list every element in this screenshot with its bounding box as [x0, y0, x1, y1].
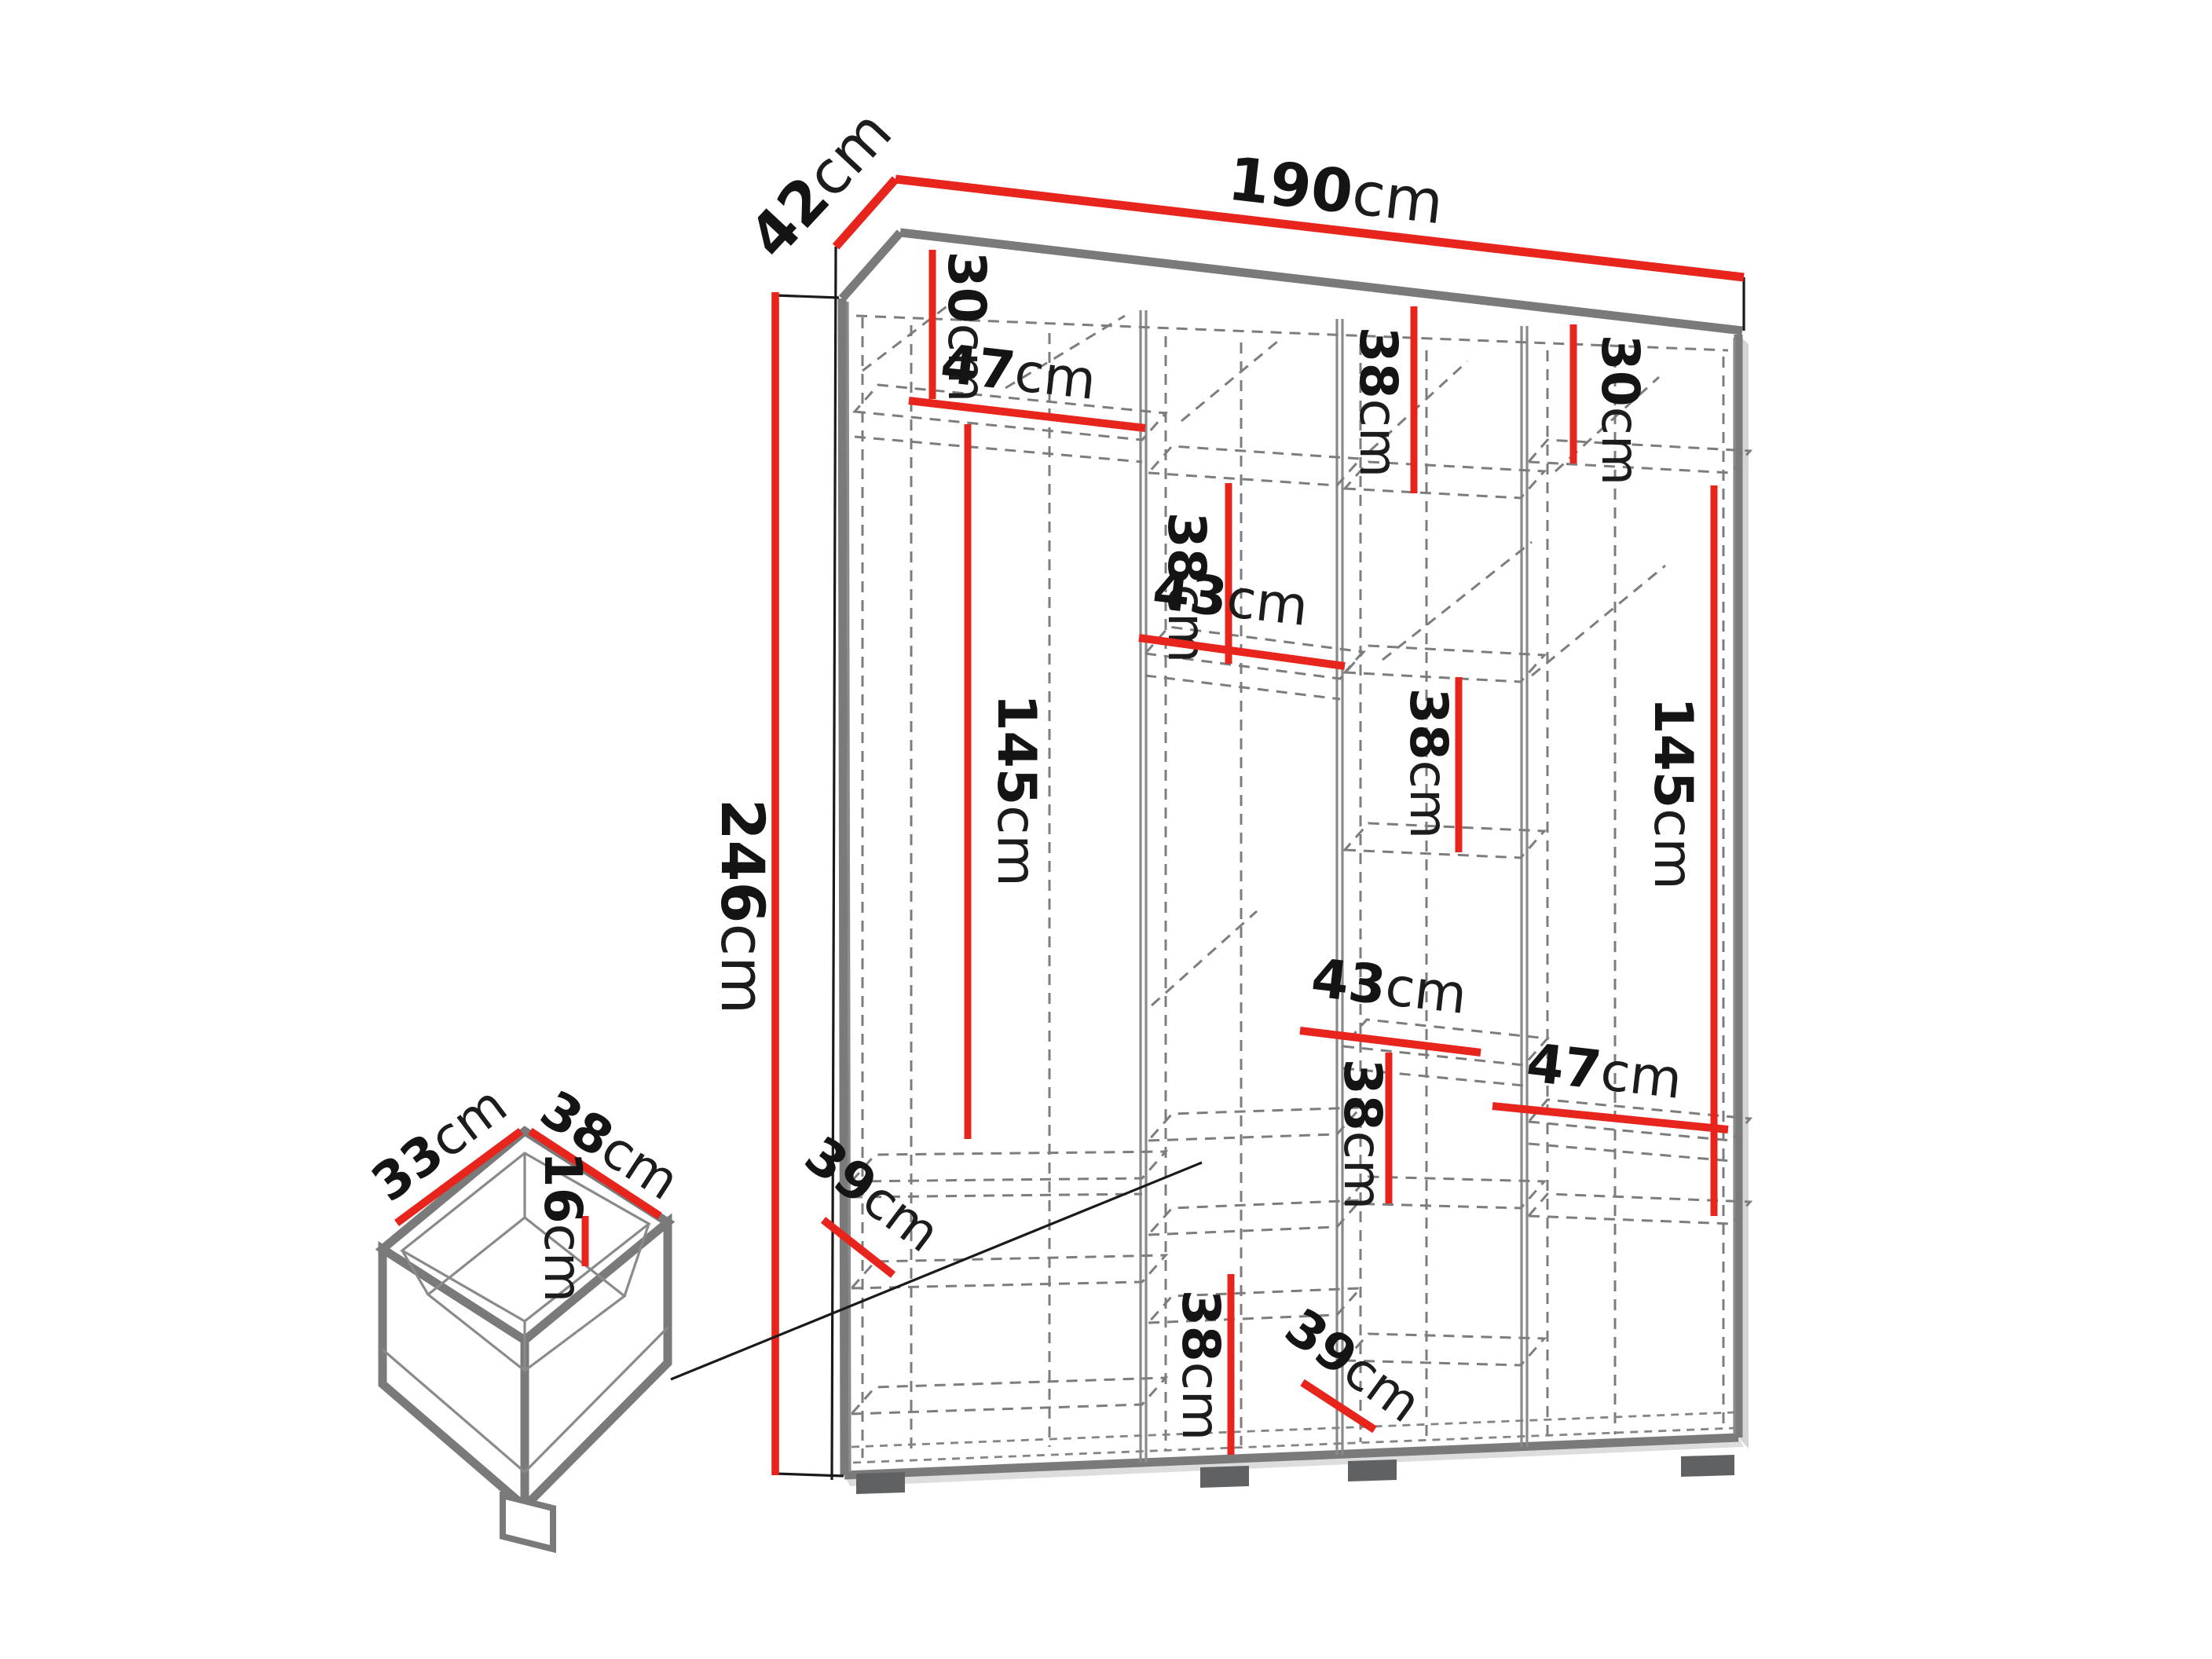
dimension-mid2-gap: 38cm [1398, 677, 1459, 852]
dimension-label-mid2-gap: 38cm [1398, 688, 1459, 839]
drawer-foot-tab [503, 1496, 553, 1549]
foot-3 [1348, 1459, 1397, 1481]
dimension-label-left-section: 145cm [985, 694, 1047, 887]
dimension-mid1-bottom: 38cm [1170, 1274, 1231, 1455]
dimension-label-mid1-bottom: 38cm [1170, 1290, 1231, 1441]
carcass-left-edge [842, 298, 844, 1475]
dimension-drawer-height: 16cm [533, 1152, 593, 1302]
foot-1 [856, 1472, 905, 1494]
dimension-mid2-lower: 38cm [1332, 1053, 1393, 1210]
dimension-label-right-top: 30cm [1590, 335, 1650, 485]
height-tick-bottom [775, 1474, 844, 1476]
foot-2 [1200, 1466, 1249, 1488]
dimension-label-height: 246cm [708, 799, 778, 1014]
diagram-page: 190cm 42cm 246cm 30cm 47cm 145cm 39cm 38… [0, 0, 2212, 1659]
height-tick-top [775, 295, 839, 298]
dimension-label-drawer-height: 16cm [533, 1152, 593, 1302]
wardrobe-dimension-diagram: 190cm 42cm 246cm 30cm 47cm 145cm 39cm 38… [0, 0, 2212, 1659]
foot-4 [1681, 1455, 1734, 1477]
dimension-height: 246cm [708, 292, 844, 1476]
dimension-label-right-section: 145cm [1642, 697, 1704, 890]
dimension-label-mid2-lower: 38cm [1332, 1059, 1393, 1210]
left-outer-edge [832, 247, 836, 1480]
dimension-label-mid2-top: 38cm [1348, 327, 1408, 478]
dimension-mid2-top: 38cm [1348, 306, 1414, 493]
